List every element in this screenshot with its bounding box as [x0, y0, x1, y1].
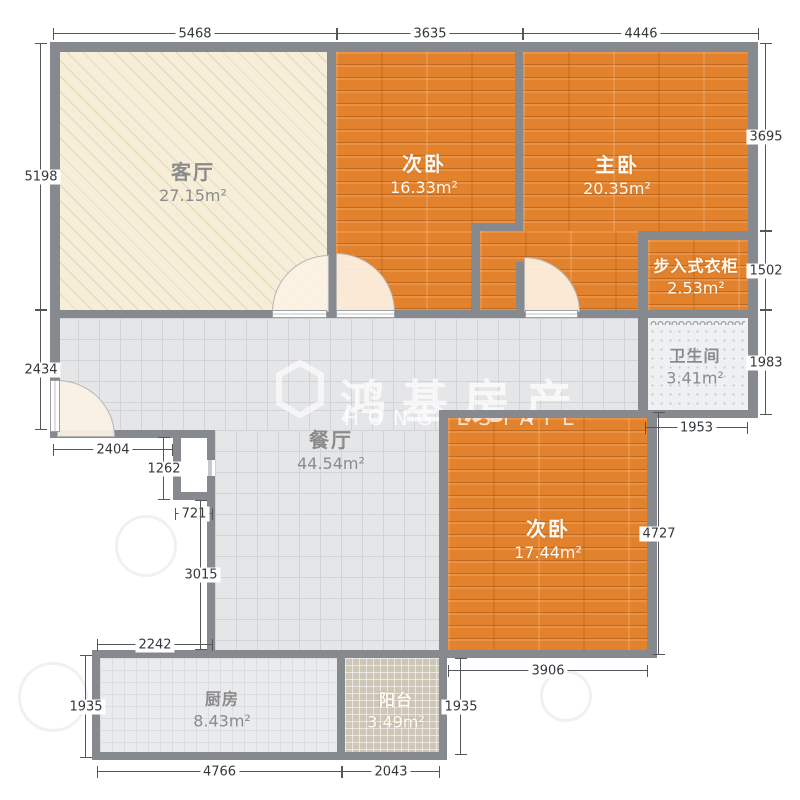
dimension-value: 1983	[746, 355, 785, 370]
bathroom-sliding-door	[650, 318, 745, 325]
ghost-ring-1	[115, 515, 177, 577]
wall-bedrooms-divider-upper	[515, 52, 523, 231]
dimension-1935: 1935	[460, 658, 461, 755]
wall-bottom	[92, 752, 447, 760]
dimension-3695: 3695	[765, 43, 766, 231]
master-bedroom-floor	[523, 52, 748, 231]
dimension-value: 4727	[639, 526, 678, 541]
wall-jog-vertical	[472, 231, 480, 310]
bedroom3-bottom-floor	[448, 418, 647, 650]
wall-left-upper	[50, 52, 60, 380]
wall-band-right	[439, 410, 758, 418]
wall-bedroom3-left	[439, 410, 448, 650]
floor-plan: 鸿基房产 HONG ESTATE 客厅27.15m²次卧16.33m²主卧20.…	[0, 0, 800, 800]
wall-closet-left	[638, 231, 648, 318]
wall-kitchen-balcony-divider	[337, 658, 345, 752]
wall-niche-right-top	[207, 438, 215, 460]
living-door-sill	[272, 310, 327, 318]
wall-closet-top	[638, 231, 758, 240]
ghost-ring-3	[18, 662, 88, 732]
entry-door-sill	[50, 380, 60, 432]
master-door-sill	[525, 310, 578, 318]
dimension-value: 2434	[21, 363, 60, 378]
dimension-value: 3635	[410, 27, 449, 42]
dimension-value: 3695	[746, 130, 785, 145]
dimension-value: 2043	[371, 765, 410, 780]
dimension-value: 2404	[93, 443, 132, 458]
dining-floor-b	[57, 410, 439, 430]
dimension-4727: 4727	[658, 412, 659, 655]
dimension-value: 4446	[621, 27, 660, 42]
wall-niche-panel	[208, 460, 212, 476]
dimension-3015: 3015	[200, 500, 201, 650]
bedroom2-door-sill	[336, 310, 395, 318]
dimension-721: 721	[175, 513, 213, 514]
wall-band-a	[50, 310, 272, 318]
dimension-value: 1502	[746, 263, 785, 278]
dimension-value: 1935	[66, 699, 105, 714]
dimension-5468: 5468	[53, 33, 337, 34]
living-room-floor	[60, 52, 327, 310]
walk-in-closet-floor	[648, 240, 748, 310]
bathroom-floor	[648, 318, 748, 410]
dimension-1953: 1953	[645, 427, 748, 428]
dimension-2242: 2242	[97, 644, 213, 645]
wall-band-c	[395, 310, 525, 318]
kitchen-floor	[100, 658, 337, 752]
dimension-value: 721	[179, 507, 210, 522]
dimension-value: 2242	[135, 638, 174, 653]
dimension-value: 1953	[677, 421, 716, 436]
dimension-3906: 3906	[448, 670, 648, 671]
dimension-1262: 1262	[163, 437, 164, 500]
wall-bedroom3-bottom	[439, 650, 657, 658]
dimension-2404: 2404	[53, 449, 173, 450]
balcony-floor	[345, 658, 439, 752]
wall-jog-horizontal	[472, 223, 523, 231]
wall-band-d	[578, 310, 748, 318]
dimension-value: 4766	[200, 765, 239, 780]
dimension-value: 3015	[181, 568, 220, 583]
dimension-1935: 1935	[85, 655, 86, 758]
dining-floor-a	[57, 318, 638, 410]
dimension-3635: 3635	[337, 33, 523, 34]
wall-master-door-stub	[516, 262, 524, 310]
dimension-1983: 1983	[765, 310, 766, 415]
dining-floor-c	[215, 430, 439, 650]
wall-top	[50, 42, 758, 52]
dimension-2043: 2043	[342, 771, 440, 772]
dimension-4446: 4446	[523, 33, 759, 34]
dimension-4766: 4766	[97, 771, 342, 772]
dimension-value: 5198	[21, 169, 60, 184]
bedroom2-top-floor	[336, 52, 515, 231]
dimension-value: 3906	[528, 664, 567, 679]
wall-bathroom-left	[638, 318, 648, 410]
dimension-value: 1262	[144, 461, 183, 476]
dimension-2434: 2434	[40, 310, 41, 430]
dimension-value: 1935	[441, 699, 480, 714]
dimension-value: 5468	[175, 27, 214, 42]
dimension-1502: 1502	[765, 231, 766, 310]
dimension-5198: 5198	[40, 43, 41, 310]
